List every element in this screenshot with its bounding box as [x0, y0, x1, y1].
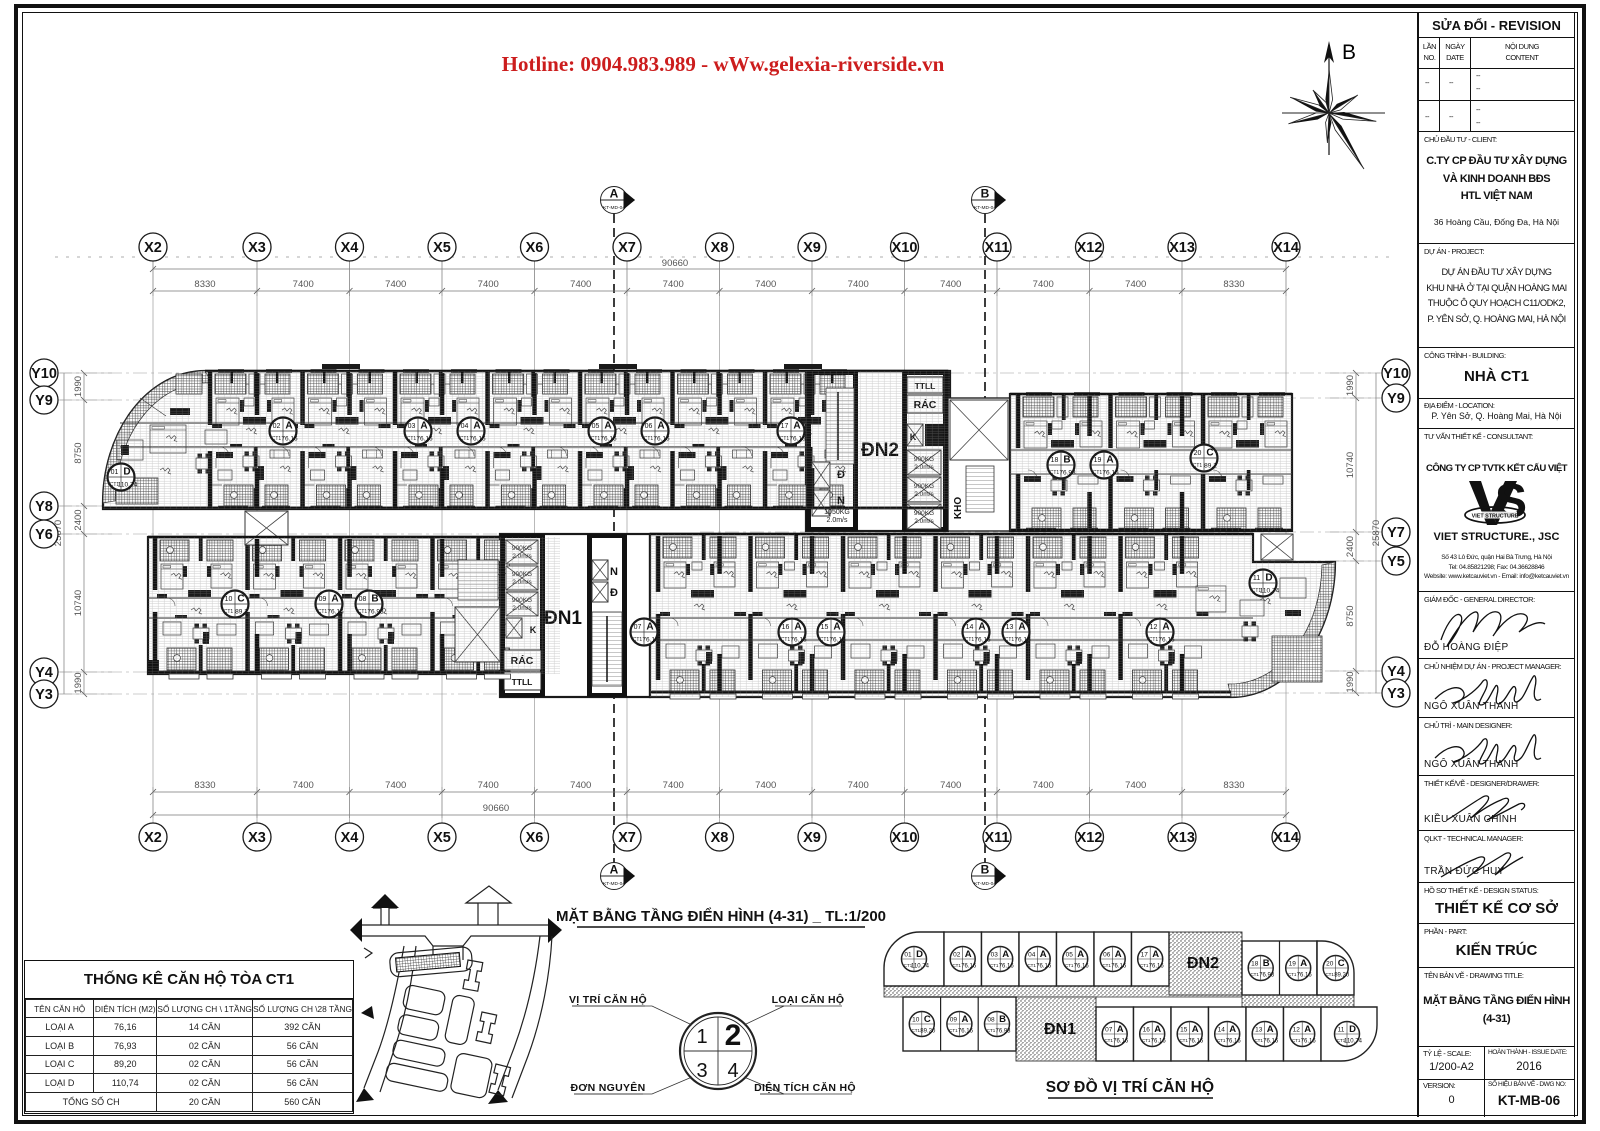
svg-text:A: A	[965, 949, 972, 960]
svg-text:7400: 7400	[848, 780, 869, 791]
svg-text:B: B	[981, 863, 990, 877]
svg-text:76.16: 76.16	[281, 436, 298, 443]
svg-text:7400: 7400	[848, 279, 869, 290]
svg-text:76.16: 76.16	[469, 436, 486, 443]
svg-text:Y10: Y10	[1383, 366, 1409, 382]
svg-text:CT1: CT1	[1325, 972, 1334, 977]
svg-text:05: 05	[592, 423, 600, 430]
svg-text:X6: X6	[526, 240, 544, 256]
svg-text:CT1: CT1	[633, 637, 643, 643]
svg-text:X9: X9	[803, 240, 821, 256]
svg-text:X8: X8	[711, 240, 729, 256]
svg-text:CT1: CT1	[1288, 972, 1297, 977]
svg-text:CT1: CT1	[1104, 1038, 1113, 1043]
svg-text:04: 04	[461, 423, 469, 430]
svg-text:ĐƠN NGUYÊN: ĐƠN NGUYÊN	[571, 1081, 646, 1094]
svg-text:LOẠI CĂN HỘ: LOẠI CĂN HỘ	[772, 993, 845, 1006]
svg-text:8330: 8330	[1223, 279, 1244, 290]
svg-text:76.16: 76.16	[1297, 973, 1313, 979]
svg-text:Y4: Y4	[1387, 664, 1405, 680]
svg-text:X6: X6	[526, 830, 544, 846]
svg-text:03: 03	[991, 952, 999, 959]
svg-text:11: 11	[1338, 1027, 1345, 1034]
svg-text:7400: 7400	[293, 279, 314, 290]
svg-text:A: A	[1040, 949, 1047, 960]
svg-text:CT1: CT1	[644, 436, 654, 442]
svg-text:CT1: CT1	[912, 1028, 921, 1033]
svg-text:X14: X14	[1273, 240, 1299, 256]
svg-text:C: C	[1206, 448, 1213, 459]
svg-text:X12: X12	[1077, 830, 1103, 846]
svg-text:A: A	[420, 421, 427, 432]
svg-text:KT-MD-04: KT-MD-04	[974, 881, 996, 887]
svg-text:76.16: 76.16	[974, 637, 991, 644]
svg-text:76.16: 76.16	[961, 964, 977, 970]
svg-text:A: A	[1002, 949, 1009, 960]
svg-text:07: 07	[1105, 1027, 1113, 1034]
svg-text:X7: X7	[618, 240, 636, 256]
svg-text:09: 09	[319, 596, 327, 603]
svg-text:A: A	[610, 863, 619, 877]
svg-text:110.74: 110.74	[1344, 1039, 1363, 1045]
svg-text:C: C	[1338, 958, 1345, 969]
svg-text:2: 2	[725, 1019, 742, 1052]
svg-text:18: 18	[1251, 961, 1259, 968]
svg-text:01: 01	[111, 469, 119, 476]
svg-text:N: N	[610, 566, 618, 578]
svg-text:D: D	[1349, 1024, 1356, 1035]
svg-text:7400: 7400	[940, 780, 961, 791]
svg-text:X11: X11	[985, 830, 1010, 846]
svg-text:1990: 1990	[1345, 671, 1356, 692]
svg-text:76.16: 76.16	[790, 637, 807, 644]
svg-text:1990: 1990	[1345, 375, 1356, 396]
svg-text:CT1: CT1	[952, 963, 961, 968]
svg-text:X8: X8	[711, 830, 729, 846]
svg-text:CT1: CT1	[1050, 470, 1060, 476]
svg-text:76.93: 76.93	[1059, 470, 1076, 477]
svg-text:04: 04	[1028, 952, 1036, 959]
svg-text:X11: X11	[985, 240, 1010, 256]
svg-text:DIỆN TÍCH CĂN HỘ: DIỆN TÍCH CĂN HỘ	[754, 1081, 856, 1094]
svg-text:7400: 7400	[478, 279, 499, 290]
svg-text:7400: 7400	[1125, 780, 1146, 791]
svg-text:89.2: 89.2	[235, 609, 248, 616]
svg-text:X3: X3	[248, 240, 266, 256]
svg-text:Y9: Y9	[1387, 391, 1405, 407]
svg-text:20: 20	[1194, 450, 1202, 457]
svg-text:2400: 2400	[73, 509, 84, 530]
svg-text:Đ: Đ	[610, 587, 618, 599]
svg-text:A: A	[978, 622, 985, 633]
svg-text:SƠ ĐỒ VỊ TRÍ CĂN HỘ: SƠ ĐỒ VỊ TRÍ CĂN HỘ	[1046, 1078, 1215, 1096]
svg-text:CT1: CT1	[358, 609, 368, 615]
svg-text:76.16: 76.16	[789, 436, 806, 443]
svg-text:15: 15	[1180, 1027, 1188, 1034]
svg-text:01: 01	[904, 952, 912, 959]
svg-text:CT1: CT1	[407, 436, 417, 442]
svg-text:90660: 90660	[483, 803, 509, 814]
svg-text:1050KG: 1050KG	[824, 509, 850, 516]
svg-text:Y9: Y9	[35, 393, 53, 409]
svg-text:B: B	[981, 187, 990, 201]
svg-text:76.16: 76.16	[653, 436, 670, 443]
svg-text:76.16: 76.16	[1263, 1039, 1279, 1045]
svg-text:A: A	[793, 421, 800, 432]
svg-text:7400: 7400	[1033, 780, 1054, 791]
svg-text:14: 14	[966, 624, 974, 631]
svg-text:Y5: Y5	[1387, 554, 1405, 570]
svg-text:76.16: 76.16	[327, 609, 344, 616]
svg-text:Y3: Y3	[35, 687, 53, 703]
svg-text:Y3: Y3	[1387, 686, 1405, 702]
svg-text:17: 17	[781, 423, 789, 430]
svg-text:16: 16	[782, 624, 790, 631]
svg-text:X10: X10	[892, 830, 918, 846]
svg-text:2.0m/s: 2.0m/s	[914, 518, 934, 525]
svg-text:76.16: 76.16	[416, 436, 433, 443]
svg-text:A: A	[1115, 949, 1122, 960]
svg-text:8330: 8330	[194, 279, 215, 290]
svg-text:8330: 8330	[1223, 780, 1244, 791]
svg-text:76.16: 76.16	[642, 637, 659, 644]
svg-text:10740: 10740	[73, 590, 84, 616]
svg-text:CT1: CT1	[820, 637, 830, 643]
svg-text:1990: 1990	[73, 376, 84, 397]
svg-text:08: 08	[359, 596, 367, 603]
svg-text:20: 20	[1326, 961, 1334, 968]
svg-text:76.16: 76.16	[829, 637, 846, 644]
svg-text:11: 11	[1253, 575, 1260, 582]
svg-text:X13: X13	[1169, 240, 1195, 256]
svg-text:76.16: 76.16	[1301, 1039, 1317, 1045]
svg-text:90660: 90660	[662, 258, 688, 269]
svg-text:CT1: CT1	[1193, 463, 1203, 469]
svg-text:10740: 10740	[1345, 452, 1356, 478]
svg-text:CT1: CT1	[965, 637, 975, 643]
svg-text:89.20: 89.20	[1334, 973, 1350, 979]
svg-text:89.20: 89.20	[920, 1029, 936, 1035]
svg-text:A: A	[1267, 1024, 1274, 1035]
svg-text:76.16: 76.16	[1074, 964, 1090, 970]
svg-text:08: 08	[987, 1017, 995, 1024]
svg-text:07: 07	[634, 624, 642, 631]
svg-text:12: 12	[1293, 1027, 1301, 1034]
svg-text:15: 15	[821, 624, 829, 631]
svg-text:76.93: 76.93	[367, 609, 384, 616]
svg-text:8750: 8750	[1345, 605, 1356, 626]
svg-text:CT1: CT1	[1093, 470, 1103, 476]
svg-text:A: A	[1077, 949, 1084, 960]
svg-text:02: 02	[273, 423, 281, 430]
svg-text:X5: X5	[433, 240, 451, 256]
svg-text:CT1: CT1	[1254, 1038, 1263, 1043]
svg-text:X14: X14	[1273, 830, 1299, 846]
svg-text:19: 19	[1289, 961, 1297, 968]
svg-text:18: 18	[1051, 457, 1059, 464]
svg-text:12: 12	[1150, 624, 1158, 631]
svg-text:7400: 7400	[1033, 279, 1054, 290]
svg-text:CT1: CT1	[272, 436, 282, 442]
svg-text:7400: 7400	[570, 780, 591, 791]
svg-text:CT1: CT1	[460, 436, 470, 442]
svg-text:110.74: 110.74	[118, 482, 138, 489]
svg-text:Y7: Y7	[1387, 525, 1405, 541]
svg-text:76.16: 76.16	[1188, 1039, 1204, 1045]
svg-text:76.16: 76.16	[1226, 1039, 1242, 1045]
svg-text:76.16: 76.16	[999, 964, 1015, 970]
svg-text:A: A	[1106, 455, 1113, 466]
svg-text:CT1: CT1	[1140, 963, 1149, 968]
svg-text:14: 14	[1218, 1027, 1226, 1034]
svg-text:TTLL: TTLL	[512, 677, 533, 687]
svg-text:A: A	[285, 421, 292, 432]
svg-text:MẶT BẰNG TẦNG ĐIỂN HÌNH (4-31): MẶT BẰNG TẦNG ĐIỂN HÌNH (4-31) _ TL:1/20…	[556, 907, 886, 925]
svg-text:7400: 7400	[755, 279, 776, 290]
svg-text:76.16: 76.16	[1014, 637, 1031, 644]
svg-text:A: A	[657, 421, 664, 432]
svg-text:X12: X12	[1077, 240, 1103, 256]
svg-text:A: A	[1117, 1024, 1124, 1035]
svg-text:A: A	[1192, 1024, 1199, 1035]
svg-text:C: C	[237, 594, 244, 605]
svg-text:A: A	[1300, 958, 1307, 969]
svg-text:C: C	[924, 1014, 931, 1025]
svg-text:06: 06	[1103, 952, 1111, 959]
svg-text:76.16: 76.16	[1111, 964, 1127, 970]
svg-text:7400: 7400	[570, 279, 591, 290]
svg-text:KT-MD-04: KT-MD-04	[974, 205, 996, 211]
svg-text:CT1: CT1	[1149, 637, 1159, 643]
svg-text:B: B	[1342, 41, 1356, 64]
svg-text:A: A	[833, 622, 840, 633]
svg-text:7400: 7400	[385, 780, 406, 791]
svg-text:Y10: Y10	[31, 366, 57, 382]
svg-text:B: B	[1063, 455, 1070, 466]
svg-text:D: D	[1265, 573, 1272, 584]
svg-text:CT1: CT1	[1142, 1038, 1151, 1043]
svg-text:13: 13	[1006, 624, 1014, 631]
svg-text:76.16: 76.16	[1149, 964, 1165, 970]
svg-text:2400: 2400	[1345, 536, 1356, 557]
svg-text:KHO: KHO	[953, 497, 964, 519]
svg-text:B: B	[371, 594, 378, 605]
svg-text:19: 19	[1094, 457, 1102, 464]
svg-text:CT1: CT1	[949, 1028, 958, 1033]
svg-text:CT1: CT1	[224, 609, 234, 615]
svg-text:X2: X2	[144, 830, 162, 846]
svg-text:3: 3	[696, 1060, 707, 1082]
svg-text:X7: X7	[618, 830, 636, 846]
svg-text:KT-MD-04: KT-MD-04	[603, 205, 625, 211]
svg-text:17: 17	[1141, 952, 1149, 959]
svg-text:A: A	[961, 1014, 968, 1025]
svg-text:KT-MD-04: KT-MD-04	[603, 881, 625, 887]
svg-text:CT1: CT1	[987, 1028, 996, 1033]
svg-text:89.2: 89.2	[1204, 463, 1217, 470]
svg-text:CT1: CT1	[1102, 963, 1111, 968]
svg-text:7400: 7400	[663, 279, 684, 290]
svg-text:VỊ TRÍ CĂN HỘ: VỊ TRÍ CĂN HỘ	[569, 993, 647, 1006]
svg-text:A: A	[1152, 949, 1159, 960]
svg-text:X13: X13	[1169, 830, 1195, 846]
svg-text:7400: 7400	[385, 279, 406, 290]
svg-text:110.74: 110.74	[911, 964, 930, 970]
svg-text:A: A	[1018, 622, 1025, 633]
svg-text:X4: X4	[341, 240, 359, 256]
svg-text:76.16: 76.16	[600, 436, 617, 443]
svg-text:7400: 7400	[755, 780, 776, 791]
svg-text:CT1: CT1	[318, 609, 328, 615]
svg-text:76.16: 76.16	[1036, 964, 1052, 970]
svg-text:X4: X4	[341, 830, 359, 846]
svg-text:CT1: CT1	[990, 963, 999, 968]
svg-text:7400: 7400	[478, 780, 499, 791]
svg-text:ĐN2: ĐN2	[1187, 955, 1219, 972]
svg-text:VIET STRUCTURE: VIET STRUCTURE	[1472, 514, 1519, 520]
svg-text:A: A	[646, 622, 653, 633]
svg-text:76.16: 76.16	[1102, 470, 1119, 477]
svg-text:25870: 25870	[1371, 520, 1382, 546]
svg-text:ĐN1: ĐN1	[1044, 1021, 1076, 1038]
svg-text:CT1: CT1	[591, 436, 601, 442]
svg-text:CT1: CT1	[1292, 1038, 1301, 1043]
svg-text:76.16: 76.16	[958, 1029, 974, 1035]
svg-text:7400: 7400	[293, 780, 314, 791]
svg-text:7400: 7400	[940, 279, 961, 290]
svg-text:B: B	[1263, 958, 1270, 969]
svg-text:13: 13	[1255, 1027, 1263, 1034]
svg-text:A: A	[604, 421, 611, 432]
svg-text:7400: 7400	[1125, 279, 1146, 290]
svg-text:09: 09	[950, 1017, 958, 1024]
svg-text:A: A	[473, 421, 480, 432]
svg-text:76.93: 76.93	[1259, 973, 1275, 979]
svg-text:Y4: Y4	[35, 665, 53, 681]
svg-text:D: D	[916, 949, 923, 960]
svg-text:05: 05	[1066, 952, 1074, 959]
svg-text:10: 10	[225, 596, 233, 603]
svg-text:D: D	[123, 467, 130, 478]
svg-text:A: A	[794, 622, 801, 633]
svg-text:A: A	[1154, 1024, 1161, 1035]
svg-text:CT1: CT1	[780, 436, 790, 442]
svg-text:2.0m/s: 2.0m/s	[826, 517, 848, 524]
svg-text:03: 03	[408, 423, 416, 430]
svg-text:02: 02	[953, 952, 961, 959]
svg-text:CT1: CT1	[781, 637, 791, 643]
svg-text:X2: X2	[144, 240, 162, 256]
svg-text:CT1: CT1	[1179, 1038, 1188, 1043]
svg-text:X10: X10	[892, 240, 918, 256]
svg-text:CT1: CT1	[1065, 963, 1074, 968]
svg-text:Y6: Y6	[35, 527, 53, 543]
svg-text:1990: 1990	[73, 672, 84, 693]
svg-text:8330: 8330	[194, 780, 215, 791]
svg-text:76.16: 76.16	[1113, 1039, 1129, 1045]
svg-text:76.16: 76.16	[1151, 1039, 1167, 1045]
svg-text:1: 1	[696, 1026, 707, 1048]
svg-text:CT1: CT1	[1250, 972, 1259, 977]
svg-text:A: A	[1304, 1024, 1311, 1035]
svg-text:4: 4	[727, 1060, 738, 1082]
svg-text:X5: X5	[433, 830, 451, 846]
svg-text:76.16: 76.16	[1158, 637, 1175, 644]
svg-text:Y8: Y8	[35, 499, 53, 515]
svg-text:76.93: 76.93	[995, 1029, 1011, 1035]
svg-text:X3: X3	[248, 830, 266, 846]
svg-text:06: 06	[645, 423, 653, 430]
svg-text:CT1: CT1	[1027, 963, 1036, 968]
svg-text:900KG: 900KG	[914, 510, 934, 517]
svg-text:A: A	[331, 594, 338, 605]
svg-text:A: A	[1229, 1024, 1236, 1035]
svg-text:16: 16	[1143, 1027, 1151, 1034]
svg-text:A: A	[610, 187, 619, 201]
svg-text:110.74: 110.74	[1260, 588, 1280, 595]
svg-text:B: B	[999, 1014, 1006, 1025]
svg-text:CT1: CT1	[1005, 637, 1015, 643]
svg-text:A: A	[1162, 622, 1169, 633]
svg-text:X9: X9	[803, 830, 821, 846]
svg-text:CT1: CT1	[1217, 1038, 1226, 1043]
svg-text:8750: 8750	[73, 442, 84, 463]
svg-text:7400: 7400	[663, 780, 684, 791]
svg-text:10: 10	[912, 1017, 920, 1024]
